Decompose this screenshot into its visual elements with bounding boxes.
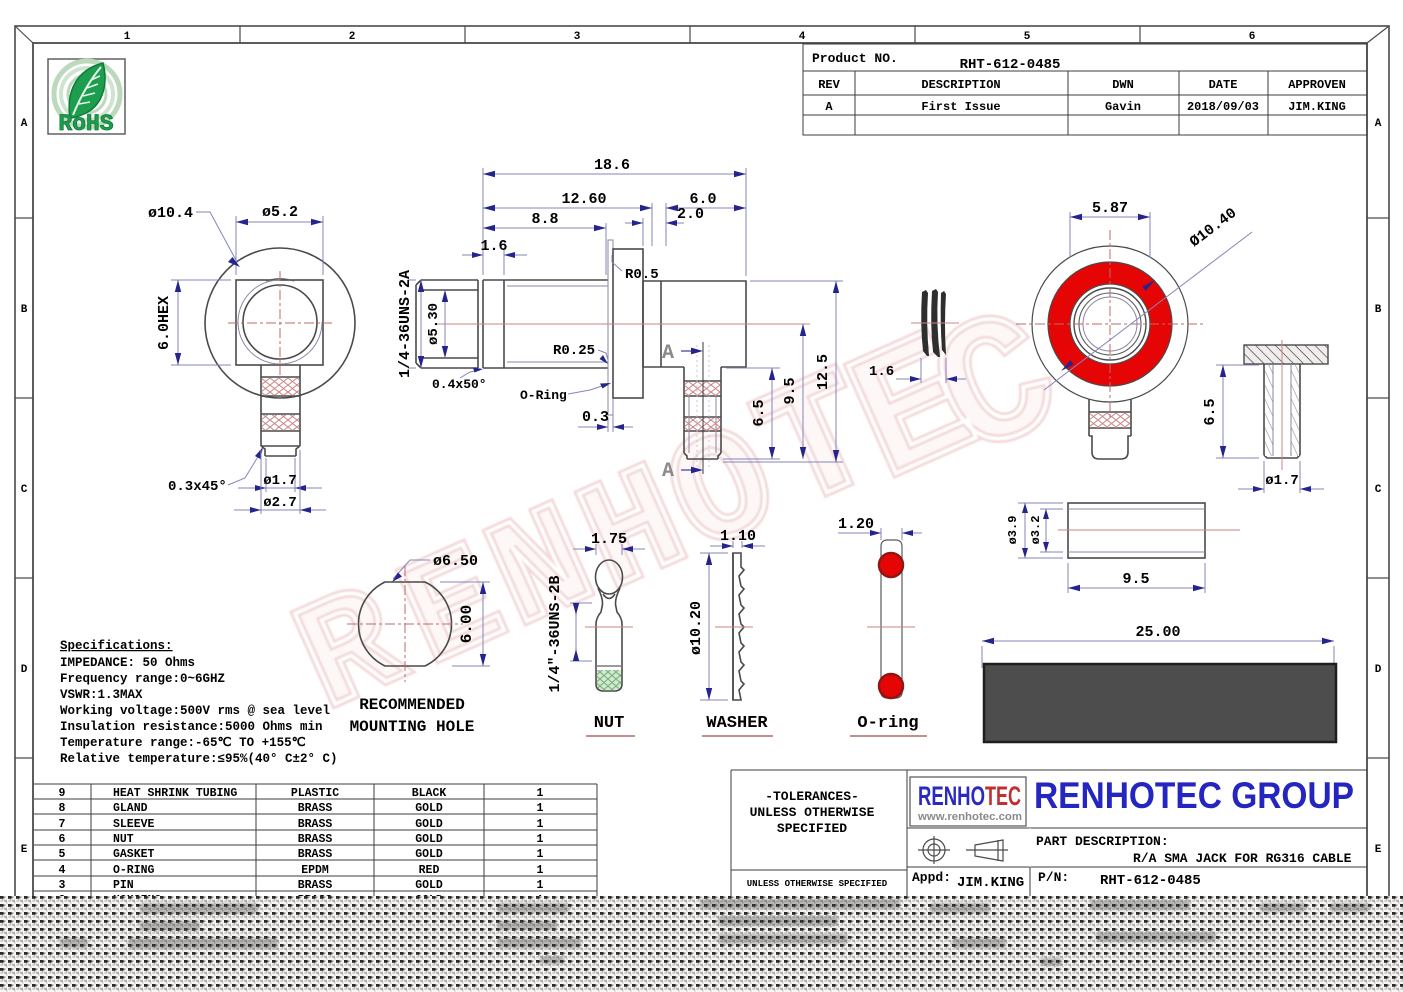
svg-text:B: B [21,304,28,316]
svg-text:RoHS: RoHS [58,111,113,137]
svg-text:APPROVEN: APPROVEN [1288,78,1346,92]
svg-text:R/A SMA JACK FOR RG316 CABLE: R/A SMA JACK FOR RG316 CABLE [1133,851,1352,866]
svg-text:1: 1 [537,818,544,831]
svg-text:E: E [1375,844,1382,856]
svg-text:GOLD: GOLD [415,879,443,892]
svg-text:First Issue: First Issue [921,100,1000,114]
svg-text:1.75: 1.75 [591,531,627,548]
svg-text:MOUNTING HOLE: MOUNTING HOLE [350,718,475,736]
svg-text:JIM.KING: JIM.KING [1288,100,1346,114]
svg-text:Appd:: Appd: [912,870,951,885]
svg-text:8.8: 8.8 [531,211,558,228]
svg-text:25.00: 25.00 [1135,624,1180,641]
svg-text:Gavin: Gavin [1105,100,1141,114]
svg-text:2018/09/03: 2018/09/03 [1187,100,1259,114]
svg-text:Frequency range:0~6GHZ: Frequency range:0~6GHZ [60,672,225,686]
svg-text:ø5.2: ø5.2 [262,204,298,221]
svg-text:RENHOTEC GROUP: RENHOTEC GROUP [1034,775,1354,816]
svg-text:5: 5 [1024,31,1031,43]
svg-text:A: A [1375,118,1382,130]
svg-text:BLACK: BLACK [412,787,447,800]
svg-text:DWN: DWN [1112,78,1134,92]
svg-text:PIN: PIN [113,879,134,892]
svg-text:DATE: DATE [1209,78,1238,92]
svg-text:NUT: NUT [594,714,625,733]
svg-text:0.3: 0.3 [582,409,609,426]
svg-text:6.5: 6.5 [751,399,768,426]
svg-text:C: C [21,484,28,496]
svg-text:7: 7 [59,818,66,831]
svg-text:1: 1 [537,802,544,815]
svg-text:RECOMMENDED: RECOMMENDED [359,696,465,714]
svg-text:1: 1 [537,848,544,861]
svg-text:1.6: 1.6 [480,238,507,255]
svg-text:WASHER: WASHER [706,714,768,733]
svg-text:Specifications:: Specifications: [60,639,173,653]
svg-text:ø1.7: ø1.7 [263,473,297,489]
svg-text:ø3.9: ø3.9 [1006,516,1020,545]
svg-text:SLEEVE: SLEEVE [113,818,155,831]
svg-text:O-ring: O-ring [857,714,918,733]
svg-text:-TOLERANCES-: -TOLERANCES- [765,789,859,804]
svg-text:12.5: 12.5 [815,354,832,390]
svg-text:3: 3 [59,879,66,892]
svg-text:BRASS: BRASS [298,818,333,831]
svg-text:C: C [1375,484,1382,496]
svg-text:1/4-36UNS-2A: 1/4-36UNS-2A [397,270,414,378]
svg-text:REV: REV [818,78,840,92]
svg-text:ø10.4: ø10.4 [148,205,193,222]
svg-text:18.6: 18.6 [594,157,630,174]
svg-text:9.5: 9.5 [1122,571,1149,588]
svg-text:3: 3 [574,31,581,43]
svg-text:D: D [21,664,28,676]
svg-text:DESCRIPTION: DESCRIPTION [921,78,1000,92]
svg-text:NUT: NUT [113,833,134,846]
svg-text:Relative temperature:≤95%(40°: Relative temperature:≤95%(40° C±2° C) [60,752,338,766]
svg-text:D: D [1375,664,1382,676]
svg-text:5: 5 [59,848,66,861]
svg-text:www.renhotec.com: www.renhotec.com [917,811,1022,823]
svg-text:EPDM: EPDM [301,864,329,877]
svg-text:ø6.50: ø6.50 [433,553,478,570]
svg-text:2: 2 [349,31,356,43]
svg-text:R0.5: R0.5 [625,267,659,283]
svg-text:RHT-612-0485: RHT-612-0485 [1100,873,1201,889]
svg-text:SPECIFIED: SPECIFIED [777,821,847,836]
svg-text:6.0HEX: 6.0HEX [156,296,173,350]
svg-text:A: A [21,118,28,130]
svg-text:ø1.7: ø1.7 [1265,473,1299,489]
svg-text:TEC: TEC [985,781,1021,811]
svg-text:5.87: 5.87 [1092,200,1128,217]
svg-text:0.3x45°: 0.3x45° [168,479,227,495]
svg-text:Working voltage:500V rms @ sea: Working voltage:500V rms @ sea level [60,704,330,718]
svg-text:6: 6 [59,833,66,846]
svg-text:IMPEDANCE: 50 Ohms: IMPEDANCE: 50 Ohms [60,656,195,670]
svg-text:HEAT SHRINK TUBING: HEAT SHRINK TUBING [113,787,237,800]
svg-text:0.4x50°: 0.4x50° [432,377,487,392]
svg-text:ø3.2: ø3.2 [1029,516,1043,545]
svg-text:A: A [662,460,674,483]
svg-text:Insulation resistance:5000 Ohm: Insulation resistance:5000 Ohms min [60,720,323,734]
svg-text:4: 4 [59,864,66,877]
svg-text:PART DESCRIPTION:: PART DESCRIPTION: [1036,834,1169,849]
svg-text:1: 1 [124,31,131,43]
svg-text:BRASS: BRASS [298,879,333,892]
svg-text:A: A [825,100,833,114]
svg-text:VSWR:1.3MAX: VSWR:1.3MAX [60,688,143,702]
svg-text:6: 6 [1249,31,1256,43]
svg-text:JIM.KING: JIM.KING [957,875,1024,891]
svg-text:1.6: 1.6 [869,364,894,380]
svg-text:RENHO: RENHO [918,781,985,811]
svg-text:B: B [1375,304,1382,316]
svg-text:GOLD: GOLD [415,802,443,815]
svg-text:Temperature range:-65℃ TO +155: Temperature range:-65℃ TO +155℃ [60,736,306,750]
svg-text:RHT-612-0485: RHT-612-0485 [960,57,1061,73]
svg-text:1.10: 1.10 [720,528,756,545]
svg-text:GOLD: GOLD [415,833,443,846]
svg-text:ø2.7: ø2.7 [263,495,297,511]
svg-text:R0.25: R0.25 [553,343,595,359]
svg-text:1: 1 [537,879,544,892]
svg-text:BRASS: BRASS [298,802,333,815]
svg-text:1: 1 [537,787,544,800]
svg-text:2.0: 2.0 [677,206,704,223]
svg-text:BRASS: BRASS [298,833,333,846]
svg-text:UNLESS OTHERWISE: UNLESS OTHERWISE [750,805,875,820]
svg-text:12.60: 12.60 [561,191,606,208]
svg-text:P/N:: P/N: [1038,870,1069,885]
svg-text:E: E [21,844,28,856]
svg-text:O-RING: O-RING [113,864,155,877]
svg-text:8: 8 [59,802,66,815]
svg-text:9.5: 9.5 [782,377,799,404]
svg-text:BRASS: BRASS [298,848,333,861]
svg-text:ø10.20: ø10.20 [688,601,705,655]
svg-text:4: 4 [799,31,806,43]
svg-text:1: 1 [537,864,544,877]
svg-text:6.5: 6.5 [1202,398,1219,425]
svg-text:GASKET: GASKET [113,848,155,861]
svg-text:1/4"-36UNS-2B: 1/4"-36UNS-2B [547,575,564,692]
svg-text:O-Ring: O-Ring [520,388,567,403]
svg-text:Product NO.: Product NO. [812,51,898,66]
svg-text:A: A [662,342,674,365]
svg-text:PLASTIC: PLASTIC [291,787,339,800]
svg-text:GLAND: GLAND [113,802,148,815]
svg-text:1.20: 1.20 [838,516,874,533]
svg-text:GOLD: GOLD [415,848,443,861]
svg-text:ø5.30: ø5.30 [426,303,442,345]
svg-text:RED: RED [419,864,440,877]
svg-text:6.00: 6.00 [458,605,476,643]
svg-text:UNLESS OTHERWISE SPECIFIED: UNLESS OTHERWISE SPECIFIED [747,879,888,889]
svg-text:1: 1 [537,833,544,846]
svg-text:9: 9 [59,787,66,800]
svg-text:GOLD: GOLD [415,818,443,831]
